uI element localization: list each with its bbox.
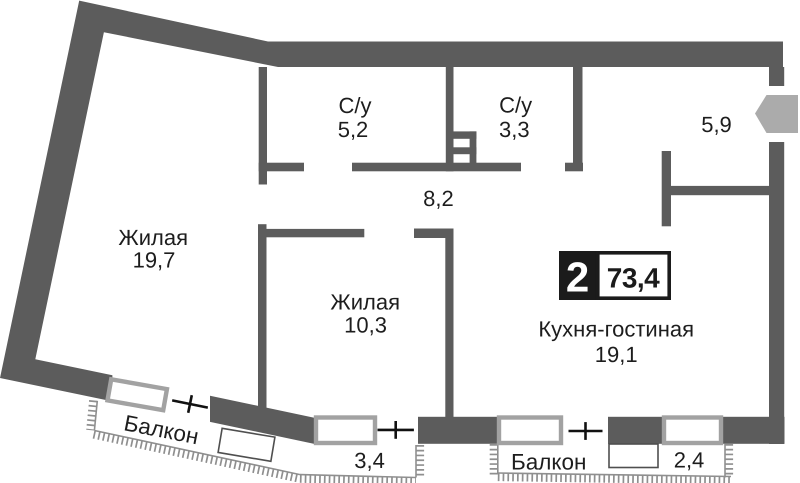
- svg-text:5,2: 5,2: [338, 117, 369, 142]
- svg-text:Кухня-гостиная: Кухня-гостиная: [538, 317, 694, 342]
- svg-text:2,4: 2,4: [674, 447, 705, 472]
- svg-text:С/у: С/у: [339, 93, 372, 118]
- svg-text:3,3: 3,3: [499, 117, 530, 142]
- svg-text:19,1: 19,1: [595, 342, 638, 367]
- svg-text:8,2: 8,2: [423, 186, 454, 211]
- svg-text:Балкон: Балкон: [511, 449, 586, 474]
- svg-text:Жилая: Жилая: [118, 225, 188, 250]
- svg-text:2: 2: [566, 254, 589, 301]
- svg-text:5,9: 5,9: [701, 112, 732, 137]
- svg-text:Жилая: Жилая: [330, 290, 400, 315]
- svg-text:73,4: 73,4: [607, 263, 660, 294]
- svg-text:3,4: 3,4: [354, 448, 385, 473]
- svg-text:10,3: 10,3: [344, 313, 387, 338]
- svg-text:С/у: С/у: [499, 93, 532, 118]
- svg-text:19,7: 19,7: [133, 248, 176, 273]
